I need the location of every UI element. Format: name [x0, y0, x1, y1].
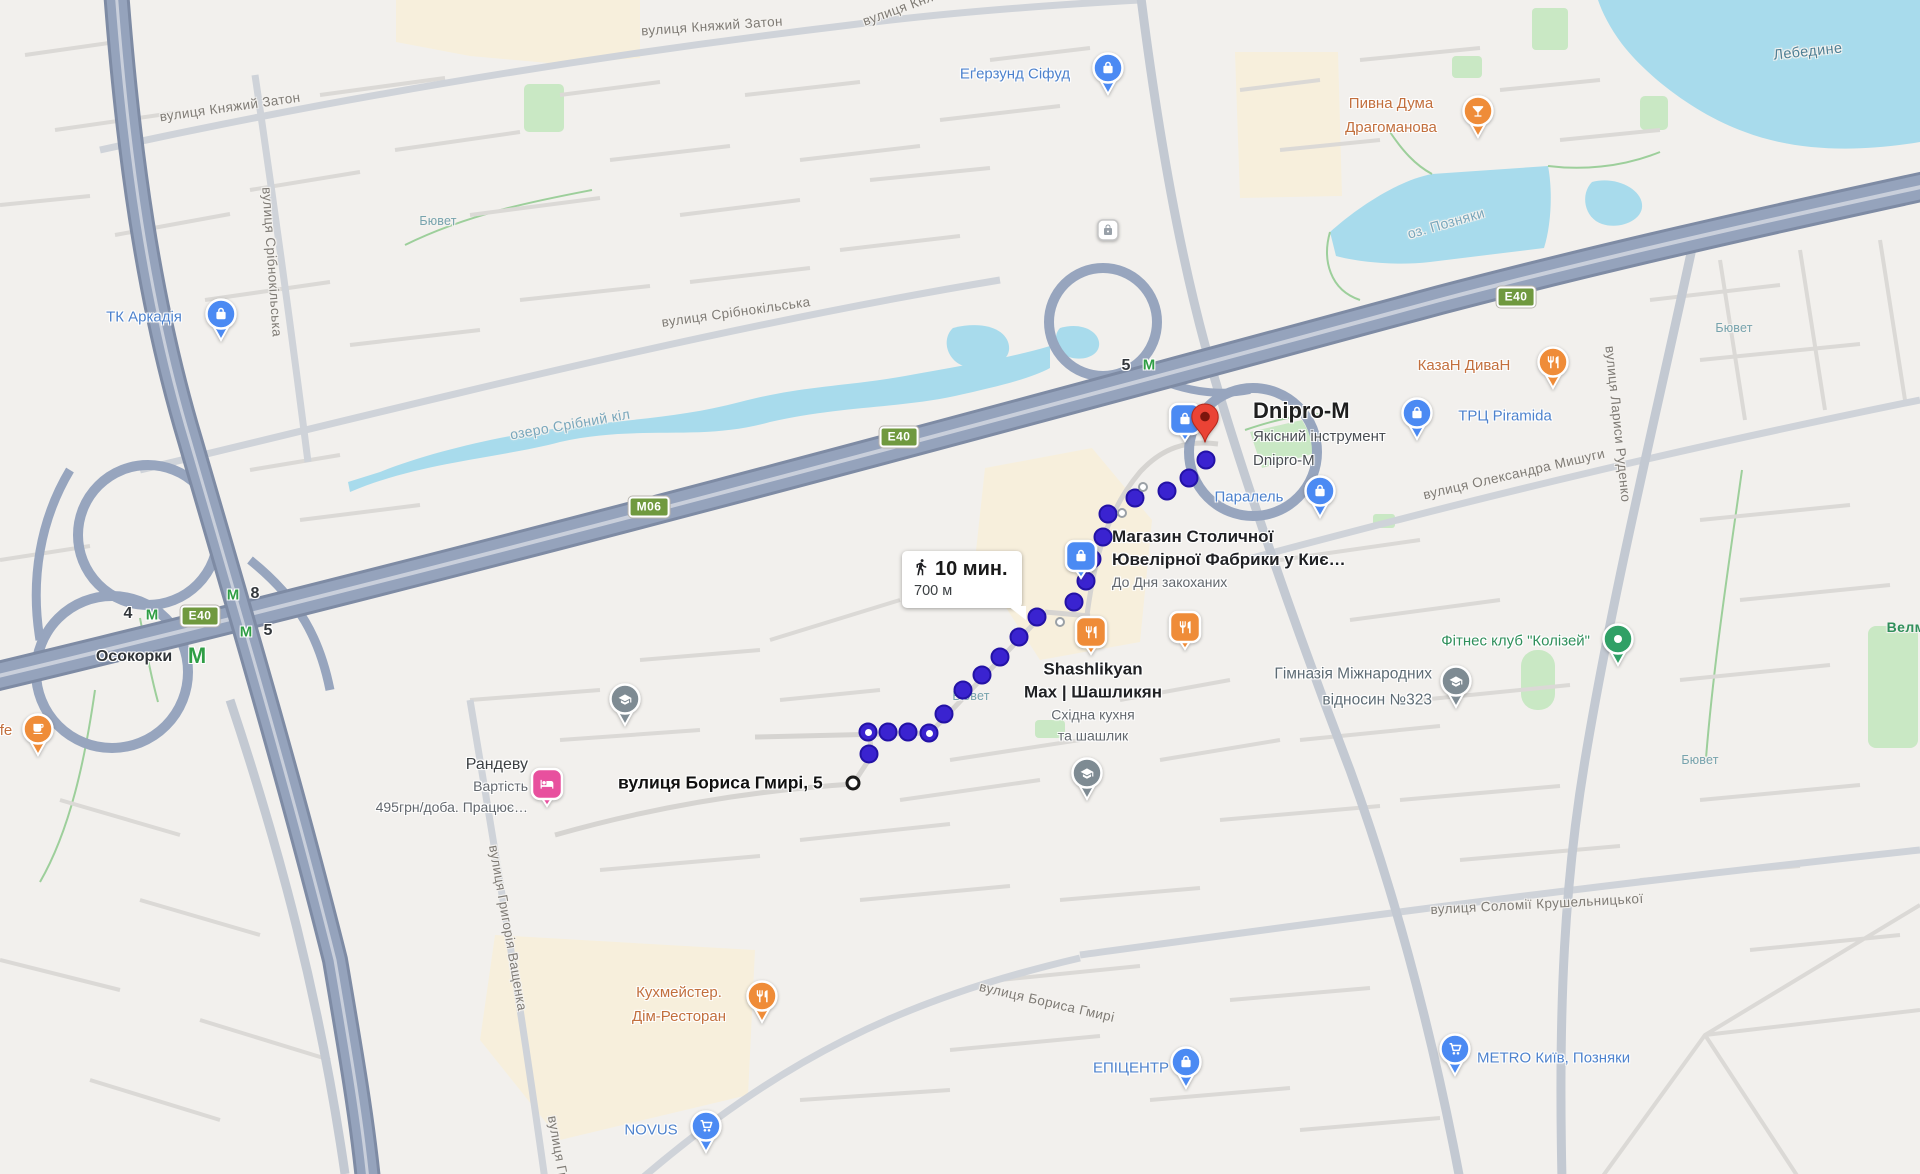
metro-label[interactable]: 4: [124, 605, 133, 623]
bag-icon: [1167, 1045, 1205, 1091]
randevu-hotel-label-line: 495грн/доба. Працює…: [376, 797, 528, 818]
shashlikyan-max-pin[interactable]: [1073, 614, 1109, 656]
map-pin-icon: [1190, 402, 1220, 444]
epicentr-pin[interactable]: [1167, 1045, 1205, 1091]
shashlikyan-max-label-line: та шашлик: [1024, 725, 1162, 746]
shashlikyan-max-label-line: Східна кухня: [1024, 704, 1162, 725]
grad-icon: [1437, 664, 1475, 710]
metro-label[interactable]: 8: [251, 585, 260, 603]
mahazyn-stolychnoi-label-line: До Дня закоханих: [1112, 572, 1346, 593]
route-dot: [1158, 482, 1177, 501]
route-dot: [920, 724, 939, 743]
route-dot: [973, 666, 992, 685]
map-label: Велма: [1887, 619, 1920, 635]
mahazyn-stolychnoi-label[interactable]: Магазин СтоличноїЮвелірної Фабрики у Киє…: [1112, 525, 1346, 593]
school-2-pin[interactable]: [1068, 756, 1106, 802]
street-label: вулиця Гр: [545, 1115, 571, 1174]
pyvna-duma-label-line: Пивна Дума: [1345, 92, 1437, 116]
route-dot: [991, 648, 1010, 667]
route-dot: [899, 723, 918, 742]
kuhmeister-pin[interactable]: [743, 979, 781, 1025]
fork-icon: [743, 979, 781, 1025]
route-dot: [1010, 628, 1029, 647]
cocktail-icon: [1459, 94, 1497, 140]
himnaziya-323-pin[interactable]: [1437, 664, 1475, 710]
map-label: оз. Позняки: [1406, 204, 1487, 241]
novus-label-line: NOVUS: [624, 1118, 677, 1141]
cafe-partial-label[interactable]: fe: [0, 719, 12, 743]
fork-icon: [1167, 609, 1203, 651]
route-dot: [1028, 608, 1047, 627]
fork-icon: [1073, 614, 1109, 656]
destination-pin[interactable]: [1190, 402, 1220, 444]
school-1-pin[interactable]: [606, 682, 644, 728]
randevu-hotel-pin[interactable]: [529, 766, 565, 808]
egersund-sifud-pin[interactable]: [1089, 51, 1127, 97]
lock-icon: [1097, 219, 1119, 241]
pyvna-duma-label-line: Драгоманова: [1345, 116, 1437, 140]
route-via-dot: [1138, 482, 1148, 492]
route-via-dot: [1055, 617, 1065, 627]
street-label: вулиця Княжий Затон: [641, 14, 784, 39]
map-label: Бювет: [419, 214, 456, 228]
grad-icon: [1068, 756, 1106, 802]
randevu-hotel-label-line: Рандеву: [376, 754, 528, 776]
epicentr-label[interactable]: ЕПІЦЕНТР: [1093, 1056, 1169, 1079]
destination-label-block[interactable]: Dnipro-M Якісний інструмент Dnipro-M: [1253, 398, 1386, 472]
paralel-label-line: Паралель: [1215, 485, 1284, 508]
street-label: вулиця Олександра Мишуги: [1422, 446, 1607, 502]
map-label: Бювет: [1715, 321, 1752, 335]
dot-icon: [1599, 622, 1637, 668]
destination-subtitle: Якісний інструмент: [1253, 426, 1386, 448]
cart-icon: [1436, 1032, 1474, 1078]
trc-piramida-label-line: ТРЦ Piramida: [1458, 404, 1552, 427]
route-start-marker[interactable]: [846, 776, 861, 791]
metro-icon[interactable]: М: [240, 624, 253, 641]
himnaziya-323-label-line: Гімназія Міжнародних: [1274, 661, 1432, 687]
metro-label[interactable]: 5: [264, 622, 273, 640]
route-via-dot: [1117, 508, 1127, 518]
route-dot: [1099, 505, 1118, 524]
map-label: Бювет: [1681, 753, 1718, 767]
egersund-sifud-label[interactable]: Еґерзунд Сіфуд: [960, 62, 1070, 85]
route-start-label[interactable]: вулиця Бориса Гмирі, 5: [618, 773, 823, 794]
pyvna-duma-label[interactable]: Пивна ДумаДрагоманова: [1345, 92, 1437, 140]
mahazyn-stolychnoi-label-line: Магазин Столичної: [1112, 525, 1346, 548]
street-label: вулиця Григорія Ващенка: [486, 844, 530, 1012]
himnaziya-323-label[interactable]: Гімназія Міжнароднихвідносин №323: [1274, 661, 1432, 712]
epicentr-label-line: ЕПІЦЕНТР: [1093, 1056, 1169, 1079]
bag-icon: [1089, 51, 1127, 97]
mahazyn-stolychnoi-pin[interactable]: [1063, 538, 1099, 580]
cafe-partial-pin[interactable]: [19, 712, 57, 758]
bag-icon: [1301, 474, 1339, 520]
paralel-label[interactable]: Паралель: [1215, 485, 1284, 508]
paralel-pin[interactable]: [1301, 474, 1339, 520]
street-label: вулиця Соломії Крушельницької: [1430, 891, 1644, 917]
route-info-tooltip[interactable]: 10 мин. 700 м: [902, 551, 1022, 608]
street-label: вулиця Лариси Руденко: [1602, 345, 1633, 503]
destination-subtitle-2: Dnipro-M: [1253, 450, 1386, 472]
route-dot: [954, 681, 973, 700]
route-dot: [1065, 593, 1084, 612]
shashlikyan-max-label[interactable]: ShashlikyanMax | ШашликянСхідна кухнята …: [1024, 658, 1162, 747]
route-dot: [1180, 469, 1199, 488]
route-duration: 10 мин.: [935, 558, 1008, 581]
kazan-dyvan-pin[interactable]: [1534, 345, 1572, 391]
tk-arkadia-label[interactable]: ТК Аркадія: [106, 305, 182, 328]
bag-icon: [1398, 396, 1436, 442]
kazan-dyvan-label[interactable]: КазаН ДиваН: [1418, 354, 1511, 378]
bag-icon: [202, 297, 240, 343]
fitnes-kolizey-label-line: Фітнес клуб "Колізей": [1441, 633, 1590, 650]
tk-arkadia-label-line: ТК Аркадія: [106, 305, 182, 328]
route-dot: [1197, 451, 1216, 470]
road-shield: E40: [880, 427, 919, 448]
bed-icon: [529, 766, 565, 808]
novus-label[interactable]: NOVUS: [624, 1118, 677, 1141]
trc-piramida-label[interactable]: ТРЦ Piramida: [1458, 404, 1552, 427]
fork-icon: [1534, 345, 1572, 391]
fitnes-kolizey-label[interactable]: Фітнес клуб "Колізей": [1441, 633, 1590, 650]
metro-kyiv-pozniaky-pin[interactable]: [1436, 1032, 1474, 1078]
destination-title[interactable]: Dnipro-M: [1253, 398, 1386, 424]
map-label: Лебедине: [1773, 40, 1843, 63]
egersund-sifud-label-line: Еґерзунд Сіфуд: [960, 62, 1070, 85]
randevu-hotel-label-line: Вартість: [376, 776, 528, 797]
metro-label[interactable]: Осокорки: [96, 648, 172, 666]
metro-kyiv-pozniaky-label-line: METRO Київ, Позняки: [1477, 1046, 1630, 1069]
restaurant-2-pin[interactable]: [1167, 609, 1203, 651]
street-label: вулиця Кня: [861, 0, 936, 29]
tooltip-tail: [1008, 606, 1026, 620]
himnaziya-323-label-line: відносин №323: [1274, 687, 1432, 713]
metro-icon[interactable]: М: [146, 607, 159, 624]
randevu-hotel-label[interactable]: РандевуВартість495грн/доба. Працює…: [376, 754, 528, 818]
kuhmeister-label-line: Дім-Ресторан: [632, 1005, 726, 1029]
grad-icon: [606, 682, 644, 728]
kuhmeister-label-line: Кухмейстер.: [632, 981, 726, 1005]
tk-arkadia-pin[interactable]: [202, 297, 240, 343]
street-label: вулиця Княжий Затон: [159, 90, 302, 125]
street-label: вулиця Срібнокільська: [661, 294, 812, 330]
street-label: вулиця Срібнокільська: [259, 187, 284, 338]
metro-icon[interactable]: М: [1143, 357, 1156, 374]
route-dot: [860, 745, 879, 764]
kazan-dyvan-label-line: КазаН ДиваН: [1418, 354, 1511, 378]
security-gate-pin[interactable]: [1097, 219, 1119, 241]
map-canvas[interactable]: вулиця Княжий Затонвулиця Княжий Затонву…: [0, 0, 1920, 1174]
route-distance: 700 м: [914, 583, 1014, 599]
metro-icon[interactable]: М: [188, 643, 206, 669]
fitnes-kolizey-pin[interactable]: [1599, 622, 1637, 668]
coffee-icon: [19, 712, 57, 758]
kuhmeister-label[interactable]: Кухмейстер.Дім-Ресторан: [632, 981, 726, 1029]
metro-label[interactable]: 5: [1122, 357, 1131, 375]
road-shield: E40: [181, 606, 220, 627]
route-dot: [879, 723, 898, 742]
street-label: вулиця Бориса Гмирі: [978, 979, 1116, 1025]
walking-icon: [912, 558, 930, 581]
cafe-partial-label-line: fe: [0, 719, 12, 743]
bag-icon: [1063, 538, 1099, 580]
route-dot: [935, 705, 954, 724]
mahazyn-stolychnoi-label-line: Ювелірної Фабрики у Киє…: [1112, 549, 1346, 572]
route-dot: [859, 723, 878, 742]
cart-icon: [687, 1109, 725, 1155]
novus-pin[interactable]: [687, 1109, 725, 1155]
road-shield: M06: [629, 497, 670, 518]
metro-icon[interactable]: М: [227, 587, 240, 604]
metro-kyiv-pozniaky-label[interactable]: METRO Київ, Позняки: [1477, 1046, 1630, 1069]
map-label: озеро Срібний кіл: [509, 406, 632, 443]
shashlikyan-max-label-line: Max | Шашликян: [1024, 681, 1162, 704]
trc-piramida-pin[interactable]: [1398, 396, 1436, 442]
road-shield: E40: [1497, 287, 1536, 308]
shashlikyan-max-label-line: Shashlikyan: [1024, 658, 1162, 681]
pyvna-duma-pin[interactable]: [1459, 94, 1497, 140]
